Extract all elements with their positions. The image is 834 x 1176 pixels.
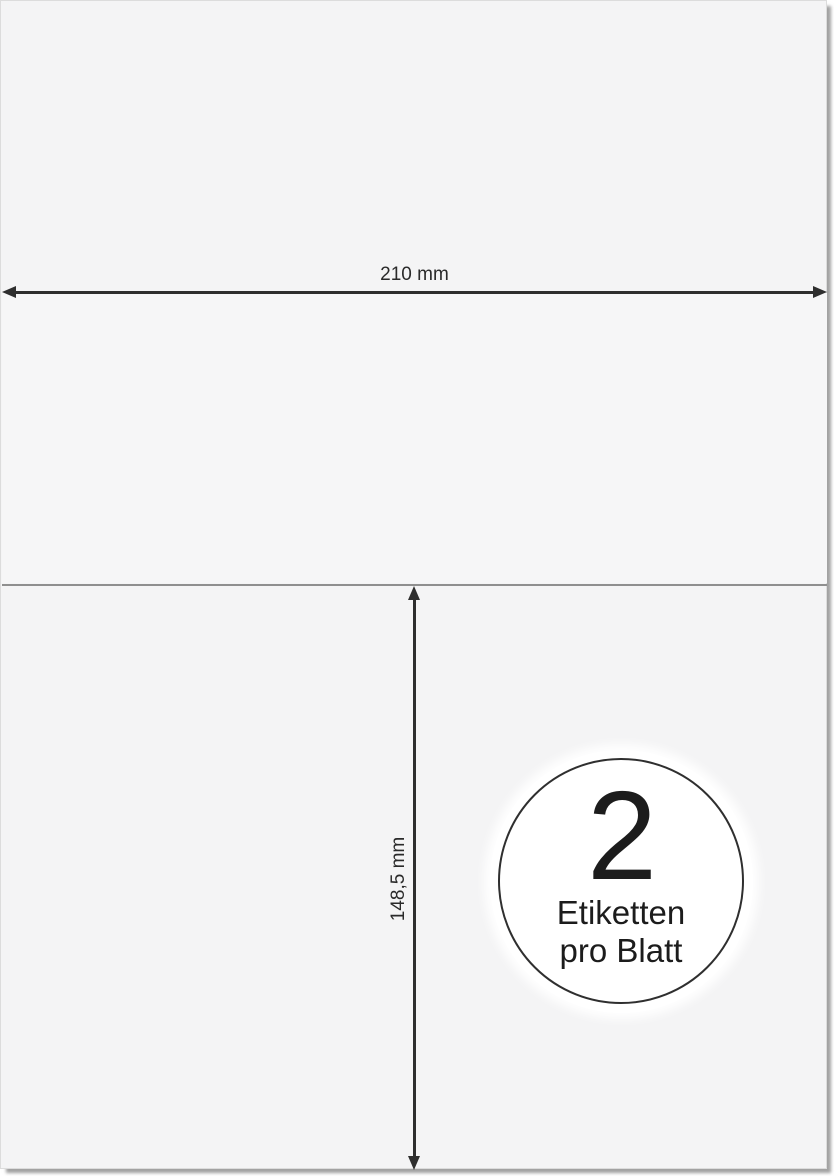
labels-per-sheet-badge: 2 Etiketten pro Blatt	[498, 758, 744, 1004]
height-arrowhead-top-icon	[408, 586, 420, 600]
badge-caption-line2: pro Blatt	[500, 932, 742, 970]
product-image: 210 mm 148,5 mm 2 Etiketten pro Blatt	[0, 0, 834, 1176]
label-area	[2, 293, 827, 583]
height-dimension-line	[413, 594, 416, 1160]
width-arrowhead-right-icon	[813, 286, 827, 298]
height-arrowhead-bottom-icon	[408, 1156, 420, 1170]
width-arrowhead-left-icon	[2, 286, 16, 298]
badge-caption-line1: Etiketten	[500, 894, 742, 932]
height-dimension-label: 148,5 mm	[388, 837, 410, 921]
width-dimension-line	[11, 291, 818, 294]
badge-count: 2	[500, 778, 742, 894]
width-dimension-label: 210 mm	[1, 264, 828, 286]
label-sheet: 210 mm 148,5 mm 2 Etiketten pro Blatt	[0, 0, 827, 1169]
